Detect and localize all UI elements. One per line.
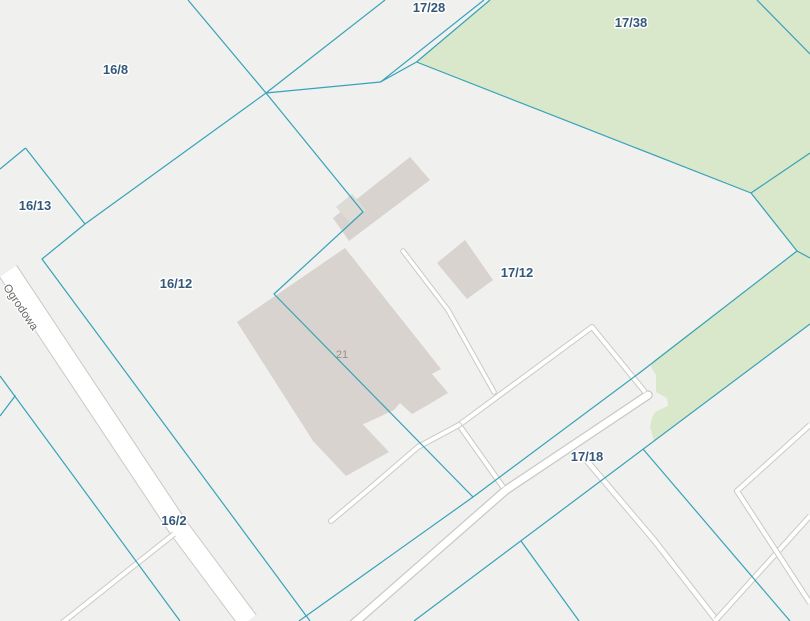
svg-text:17/18: 17/18 xyxy=(571,449,604,464)
svg-text:17/38: 17/38 xyxy=(615,15,648,30)
svg-text:16/8: 16/8 xyxy=(103,62,128,77)
svg-text:21: 21 xyxy=(336,349,348,361)
svg-text:16/13: 16/13 xyxy=(19,198,52,213)
svg-text:16/12: 16/12 xyxy=(160,276,193,291)
svg-text:17/12: 17/12 xyxy=(501,265,534,280)
svg-text:16/2: 16/2 xyxy=(161,513,186,528)
svg-text:17/28: 17/28 xyxy=(413,0,446,15)
